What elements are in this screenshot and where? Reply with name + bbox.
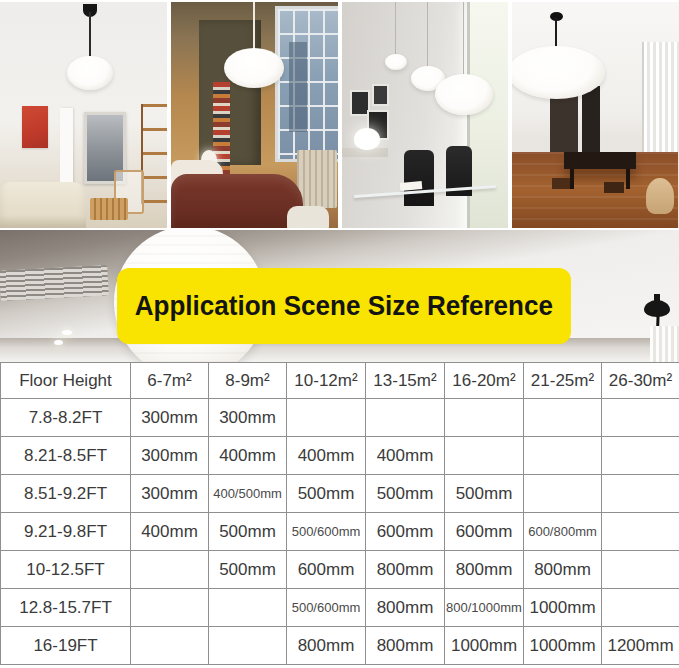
- size-cell: 800mm: [366, 627, 445, 665]
- pendant-lamp: [385, 54, 407, 70]
- column-header: 8-9m²: [209, 363, 287, 399]
- air-vent: [0, 265, 109, 301]
- row-header: 10-12.5FT: [1, 551, 131, 589]
- size-cell: 600mm: [445, 513, 524, 551]
- table-leg: [626, 169, 630, 189]
- size-cell: 600mm: [287, 551, 366, 589]
- recessed-light: [62, 330, 72, 335]
- size-cell: 1000mm: [445, 627, 524, 665]
- bedroom-scene-photo: [171, 2, 338, 228]
- scene-photos-row: [0, 2, 679, 228]
- row-header: 16-19FT: [1, 627, 131, 665]
- pillow: [287, 206, 329, 228]
- lounge-chair: [646, 178, 674, 214]
- size-cell: 300mm: [209, 399, 287, 437]
- size-cell: 800mm: [445, 551, 524, 589]
- size-cell: 300mm: [131, 437, 209, 475]
- size-cell: [287, 399, 366, 437]
- living-room-scene-photo: [0, 2, 167, 228]
- stool: [604, 182, 624, 193]
- row-header: 8.51-9.2FT: [1, 475, 131, 513]
- column-header: 16-20m²: [445, 363, 524, 399]
- column-header: 26-30m²: [602, 363, 679, 399]
- curtain: [650, 326, 679, 362]
- ceiling-scene-photo: Application Scene Size Reference: [0, 230, 679, 362]
- size-cell: [602, 437, 679, 475]
- sofa: [0, 182, 86, 228]
- size-cell: 500mm: [287, 475, 366, 513]
- size-cell: [524, 399, 602, 437]
- picture-frame: [372, 84, 389, 106]
- doorway: [582, 86, 600, 152]
- size-cell: 400mm: [287, 437, 366, 475]
- ceiling-canopy: [644, 300, 670, 317]
- doorway: [550, 90, 578, 152]
- size-cell: 300mm: [131, 399, 209, 437]
- bookshelf: [141, 104, 167, 204]
- recessed-light: [54, 340, 63, 345]
- size-cell: 800mm: [524, 551, 602, 589]
- column-header: 10-12m²: [287, 363, 366, 399]
- table-row: 12.8-15.7FT 500/600mm 800mm 800/1000mm 1…: [1, 589, 679, 627]
- size-cell: [131, 551, 209, 589]
- column-header: 21-25m²: [524, 363, 602, 399]
- size-cell: [602, 475, 679, 513]
- wall-poster: [22, 106, 48, 148]
- size-cell: 500/600mm: [287, 513, 366, 551]
- table-row: 7.8-8.2FT 300mm 300mm: [1, 399, 679, 437]
- size-cell: 600/800mm: [524, 513, 602, 551]
- table-leg: [570, 169, 574, 189]
- lamp-cord: [463, 2, 464, 76]
- size-reference-table: Floor Height 6-7m² 8-9m² 10-12m² 13-15m²…: [0, 362, 679, 665]
- size-cell: [602, 513, 679, 551]
- office-chair: [404, 150, 434, 206]
- size-cell: [445, 437, 524, 475]
- size-cell: [131, 627, 209, 665]
- column-header: 6-7m²: [131, 363, 209, 399]
- size-cell: 1000mm: [524, 627, 602, 665]
- dining-table: [564, 152, 636, 169]
- row-header: 8.21-8.5FT: [1, 437, 131, 475]
- pendant-lamp: [435, 74, 493, 115]
- size-cell: 500mm: [366, 475, 445, 513]
- table-row: 9.21-9.8FT 400mm 500mm 500/600mm 600mm 6…: [1, 513, 679, 551]
- section-banner: Application Scene Size Reference: [117, 268, 571, 344]
- section-banner-title: Application Scene Size Reference: [135, 290, 553, 322]
- size-cell: [602, 399, 679, 437]
- size-cell: [602, 589, 679, 627]
- size-cell: [209, 589, 287, 627]
- size-cell: 1200mm: [602, 627, 679, 665]
- size-cell: [366, 399, 445, 437]
- table-header-row: Floor Height 6-7m² 8-9m² 10-12m² 13-15m²…: [1, 363, 679, 399]
- size-cell: 300mm: [131, 475, 209, 513]
- window: [467, 2, 509, 228]
- row-header: 7.8-8.2FT: [1, 399, 131, 437]
- row-header: 9.21-9.8FT: [1, 513, 131, 551]
- size-cell: 1000mm: [524, 589, 602, 627]
- size-cell: 400/500mm: [209, 475, 287, 513]
- curtained-window: [642, 42, 679, 164]
- size-cell: [602, 551, 679, 589]
- size-cell: 800mm: [287, 627, 366, 665]
- stool: [552, 178, 570, 189]
- size-cell: [131, 589, 209, 627]
- wardrobe: [199, 20, 261, 165]
- size-cell: [524, 475, 602, 513]
- lamp-size-infographic: Application Scene Size Reference Floor H…: [0, 0, 679, 668]
- bed: [171, 174, 303, 228]
- size-cell: 500mm: [209, 513, 287, 551]
- lamp-cord: [395, 2, 396, 56]
- size-cell: 500mm: [209, 551, 287, 589]
- coffee-table: [90, 198, 128, 220]
- lamp-cord: [427, 2, 428, 68]
- radiator: [297, 150, 337, 208]
- size-cell: 800mm: [366, 551, 445, 589]
- size-cell: 400mm: [209, 437, 287, 475]
- pendant-lamp: [224, 48, 284, 88]
- size-cell: [209, 627, 287, 665]
- building-silhouette: [289, 42, 307, 132]
- size-cell: 800mm: [366, 589, 445, 627]
- size-cell: 500mm: [445, 475, 524, 513]
- column-header: 13-15m²: [366, 363, 445, 399]
- table-row: 10-12.5FT 500mm 600mm 800mm 800mm 800mm: [1, 551, 679, 589]
- size-cell: 600mm: [366, 513, 445, 551]
- size-cell: 400mm: [131, 513, 209, 551]
- lamp-cord: [253, 2, 255, 52]
- lamp-cord: [89, 12, 91, 62]
- table-lamp: [354, 128, 380, 150]
- size-cell: 400mm: [366, 437, 445, 475]
- pendant-lamp: [67, 56, 113, 90]
- size-cell: [524, 437, 602, 475]
- row-header: 12.8-15.7FT: [1, 589, 131, 627]
- size-cell: [445, 399, 524, 437]
- table-row: 16-19FT 800mm 800mm 1000mm 1000mm 1200mm: [1, 627, 679, 665]
- size-cell: 500/600mm: [287, 589, 366, 627]
- column-header: Floor Height: [1, 363, 131, 399]
- dining-room-scene-photo: [512, 2, 679, 228]
- table-row: 8.21-8.5FT 300mm 400mm 400mm 400mm: [1, 437, 679, 475]
- size-cell: 800/1000mm: [445, 589, 524, 627]
- table-row: 8.51-9.2FT 300mm 400/500mm 500mm 500mm 5…: [1, 475, 679, 513]
- office-scene-photo: [342, 2, 509, 228]
